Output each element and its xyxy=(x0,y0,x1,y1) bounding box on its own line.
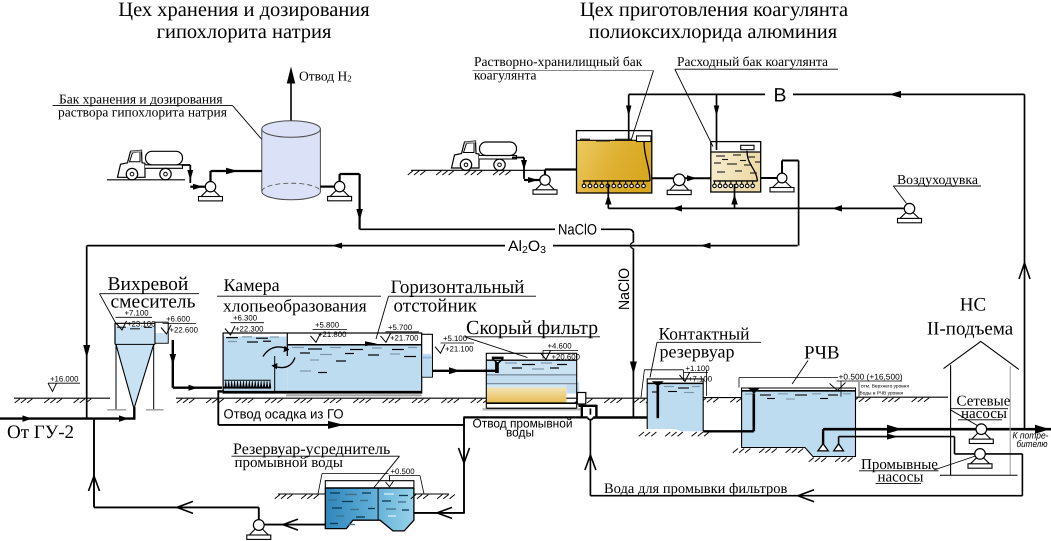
svg-text:раствора гипохлорита натрия: раствора гипохлорита натрия xyxy=(58,105,227,120)
svg-text:гипохлорита натрия: гипохлорита натрия xyxy=(157,21,332,43)
svg-text:+6.600: +6.600 xyxy=(166,315,191,324)
svg-text:Цех приготовления коагулянта: Цех приготовления коагулянта xyxy=(580,0,848,21)
svg-text:промывной воды: промывной воды xyxy=(235,455,343,471)
svg-text:воды: воды xyxy=(506,426,534,440)
svg-text:коагулянта: коагулянта xyxy=(474,68,537,83)
svg-text:Отвод H2: Отвод H2 xyxy=(299,69,352,84)
svg-text:смеситель: смеситель xyxy=(111,292,196,313)
svg-text:NaClO: NaClO xyxy=(616,268,633,310)
svg-text:+7.100: +7.100 xyxy=(125,308,150,317)
svg-text:+7.100: +7.100 xyxy=(688,374,713,383)
svg-text:+0.500 (+16,500): +0.500 (+16,500) xyxy=(839,372,903,381)
svg-text:От ГУ-2: От ГУ-2 xyxy=(7,422,74,443)
svg-text:+5.100: +5.100 xyxy=(443,334,468,343)
svg-text:Контактный: Контактный xyxy=(659,324,750,344)
svg-text:В: В xyxy=(774,85,787,107)
svg-text:+20.600: +20.600 xyxy=(552,352,581,361)
svg-text:Воды в РЧВ уровня: Воды в РЧВ уровня xyxy=(860,391,904,397)
svg-text:+21.800: +21.800 xyxy=(318,330,347,339)
svg-text:Воздуходувка: Воздуходувка xyxy=(897,172,978,187)
svg-text:отстойник: отстойник xyxy=(394,296,478,317)
svg-text:отм. Верхнего уровня: отм. Верхнего уровня xyxy=(861,383,909,389)
svg-text:II-подъема: II-подъема xyxy=(927,319,1014,340)
svg-text:Цех хранения и дозирования: Цех хранения и дозирования xyxy=(118,0,370,21)
svg-text:+0.500: +0.500 xyxy=(391,467,416,476)
svg-text:бителю: бителю xyxy=(1017,439,1048,450)
svg-text:Отвод осадка из ГО: Отвод осадка из ГО xyxy=(224,406,344,421)
svg-text:+22.300: +22.300 xyxy=(235,325,264,334)
svg-text:+21.700: +21.700 xyxy=(390,334,419,343)
svg-text:+16.000: +16.000 xyxy=(50,375,79,384)
svg-text:НС: НС xyxy=(960,295,986,316)
svg-text:+4.600: +4.600 xyxy=(548,341,573,350)
svg-text:+6.300: +6.300 xyxy=(233,314,258,323)
svg-text:+5.700: +5.700 xyxy=(388,323,413,332)
svg-text:РЧВ: РЧВ xyxy=(804,343,840,364)
svg-text:NaClO: NaClO xyxy=(558,222,597,239)
svg-text:+23.100: +23.100 xyxy=(127,319,156,328)
svg-text:резервуар: резервуар xyxy=(660,342,735,362)
svg-text:хлопьеобразования: хлопьеобразования xyxy=(223,296,367,316)
svg-text:+21.100: +21.100 xyxy=(445,345,474,354)
svg-text:+22.600: +22.600 xyxy=(170,326,199,335)
svg-text:Скорый фильтр: Скорый фильтр xyxy=(466,317,598,339)
svg-text:Вода для промывки фильтров: Вода для промывки фильтров xyxy=(604,481,787,497)
svg-text:Камера: Камера xyxy=(224,275,280,295)
svg-text:+5.800: +5.800 xyxy=(315,321,340,330)
svg-text:полиоксихлорида алюминия: полиоксихлорида алюминия xyxy=(589,21,838,43)
svg-text:Расходный бак коагулянта: Расходный бак коагулянта xyxy=(677,54,828,69)
